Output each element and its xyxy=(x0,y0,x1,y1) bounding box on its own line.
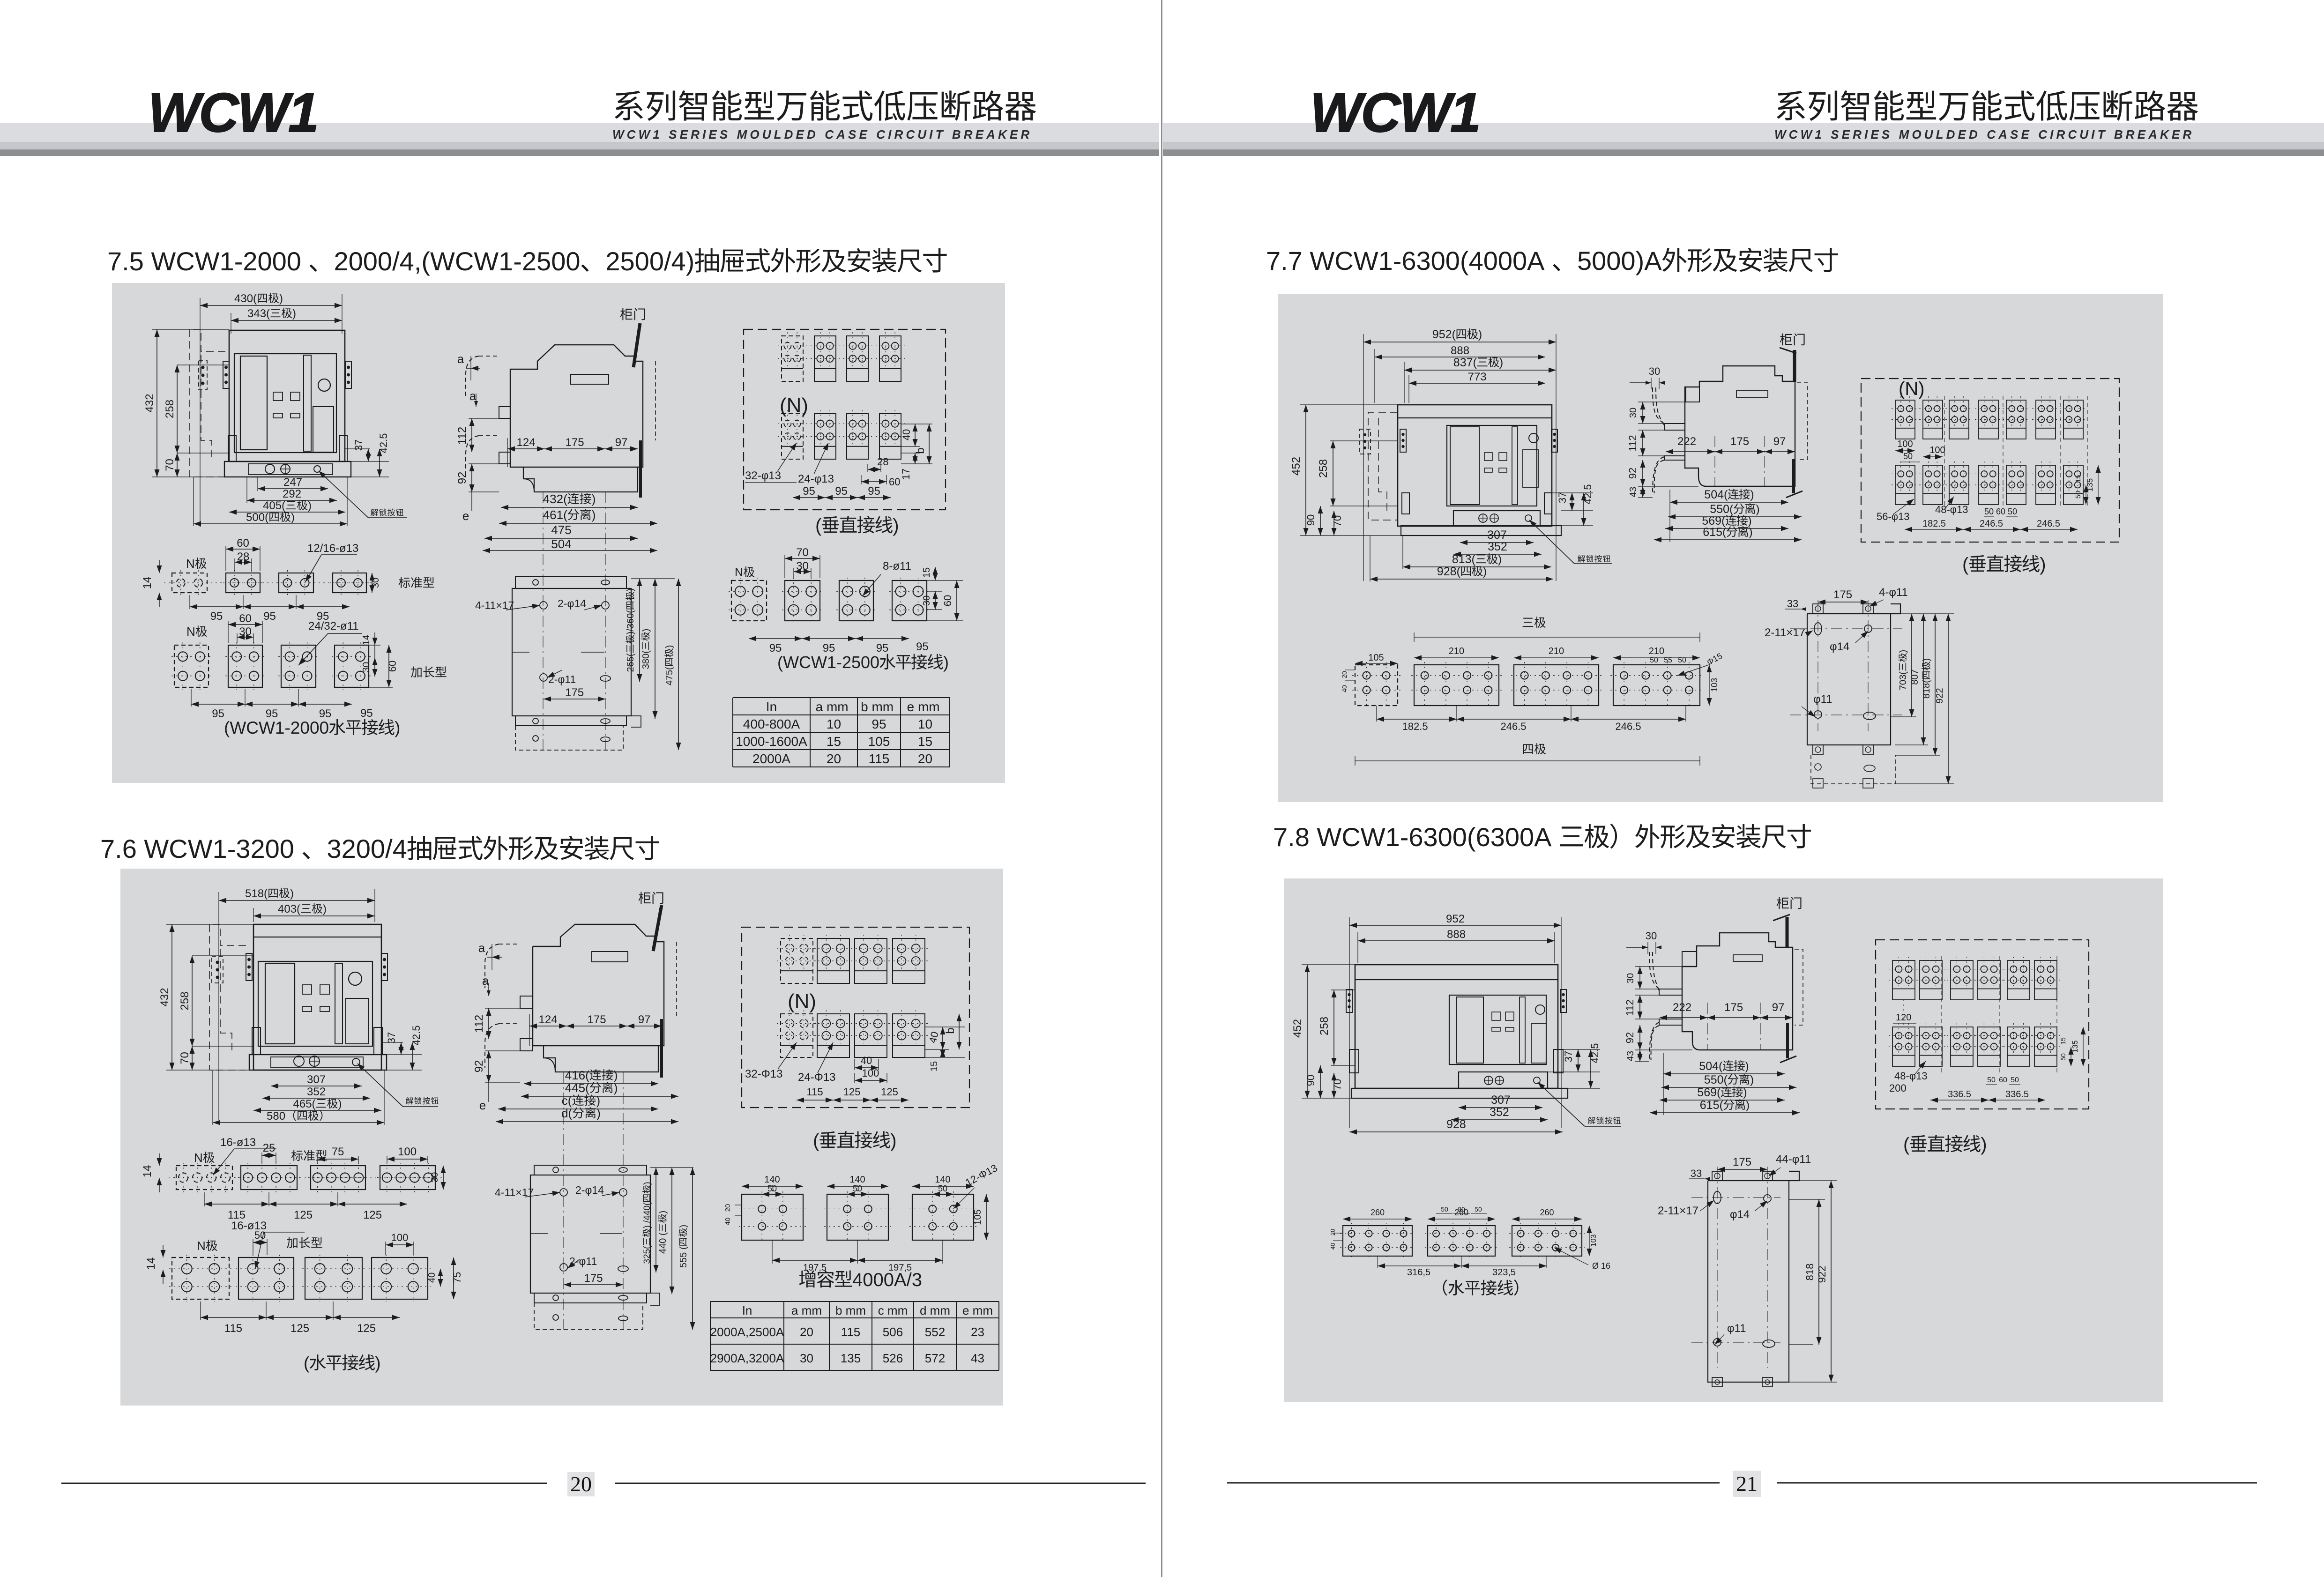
svg-text:): ) xyxy=(1745,1060,1749,1073)
svg-text:70: 70 xyxy=(179,1052,191,1064)
svg-text:30: 30 xyxy=(1649,365,1660,377)
svg-text:30: 30 xyxy=(1646,930,1657,942)
svg-text:): ) xyxy=(664,645,675,648)
svg-text:)/360(: )/360( xyxy=(626,610,636,635)
svg-text:(: ( xyxy=(304,1354,310,1373)
svg-text:33: 33 xyxy=(1787,598,1798,610)
svg-text:4000A/3: 4000A/3 xyxy=(852,1270,922,1290)
svg-text:): ) xyxy=(1478,328,1482,341)
svg-text:23: 23 xyxy=(971,1325,984,1339)
svg-text:92: 92 xyxy=(1627,468,1639,479)
svg-text:a: a xyxy=(457,352,464,366)
svg-text:14: 14 xyxy=(141,1165,154,1178)
svg-text:20: 20 xyxy=(570,1472,592,1496)
svg-text:90: 90 xyxy=(1305,1075,1317,1086)
svg-text:60: 60 xyxy=(942,595,953,606)
svg-text:WCW1: WCW1 xyxy=(148,82,318,144)
svg-text:60: 60 xyxy=(889,476,900,488)
svg-text:40: 40 xyxy=(1341,685,1348,692)
svg-text:2-φ14: 2-φ14 xyxy=(575,1184,604,1196)
svg-text:343(: 343( xyxy=(247,307,270,320)
svg-text:807: 807 xyxy=(1910,669,1920,684)
svg-text:(: ( xyxy=(813,1131,819,1151)
svg-text:92: 92 xyxy=(456,472,469,484)
svg-text:): ) xyxy=(290,887,294,900)
svg-text:95: 95 xyxy=(212,707,224,720)
svg-text:φ14: φ14 xyxy=(1730,1208,1750,1221)
svg-text:432(: 432( xyxy=(543,492,567,506)
svg-text:30: 30 xyxy=(361,662,372,672)
svg-text:105: 105 xyxy=(868,734,890,749)
svg-text:552: 552 xyxy=(925,1325,945,1339)
svg-text:φ11: φ11 xyxy=(1727,1322,1746,1335)
svg-text:928: 928 xyxy=(1446,1118,1466,1131)
svg-text:40: 40 xyxy=(427,1272,437,1283)
svg-text:50: 50 xyxy=(1903,452,1913,461)
svg-text:452: 452 xyxy=(1291,1019,1304,1038)
svg-text:30: 30 xyxy=(1628,408,1639,418)
svg-text:): ) xyxy=(641,629,651,632)
svg-text:403(: 403( xyxy=(278,903,300,915)
svg-text:): ) xyxy=(642,1182,652,1184)
svg-text:In: In xyxy=(766,699,777,714)
svg-text:(: ( xyxy=(1903,1134,1910,1155)
svg-text:105: 105 xyxy=(973,1209,983,1225)
svg-text:258: 258 xyxy=(1318,1017,1331,1035)
svg-text:): ) xyxy=(338,1098,342,1110)
svg-text:197,5: 197,5 xyxy=(803,1263,827,1273)
svg-text:): ) xyxy=(678,1225,689,1228)
svg-text:42.5: 42.5 xyxy=(1589,1043,1601,1064)
svg-text:952: 952 xyxy=(1446,913,1465,925)
svg-text:): ) xyxy=(1498,553,1502,566)
svg-text:112: 112 xyxy=(473,1015,485,1033)
svg-text:175: 175 xyxy=(565,686,584,699)
svg-text:φ14: φ14 xyxy=(1830,640,1849,653)
svg-text:a: a xyxy=(469,389,477,403)
svg-text:20: 20 xyxy=(918,751,932,766)
svg-text:5000)A: 5000)A xyxy=(1577,246,1662,275)
svg-text:400-800A: 400-800A xyxy=(743,717,800,731)
svg-text:): ) xyxy=(1743,1086,1747,1099)
svg-text:445(: 445( xyxy=(565,1081,589,1095)
svg-text:): ) xyxy=(614,1081,618,1095)
svg-text:475: 475 xyxy=(551,523,571,537)
svg-text:33: 33 xyxy=(1691,1168,1702,1179)
svg-text:50: 50 xyxy=(1984,507,1994,516)
svg-text:): ) xyxy=(1981,1134,1987,1155)
svg-text:210: 210 xyxy=(1449,646,1464,656)
svg-text:d mm: d mm xyxy=(920,1303,950,1317)
svg-text:φ11: φ11 xyxy=(1813,693,1832,706)
svg-text:N: N xyxy=(735,566,743,579)
svg-text:16-ø13: 16-ø13 xyxy=(220,1136,256,1149)
svg-text:135: 135 xyxy=(2071,1041,2079,1053)
svg-text:135: 135 xyxy=(841,1351,861,1365)
svg-text:818: 818 xyxy=(1804,1264,1816,1281)
svg-text:95: 95 xyxy=(263,610,276,623)
svg-text:526: 526 xyxy=(883,1351,903,1365)
svg-text:103: 103 xyxy=(1590,1235,1598,1247)
svg-text:506: 506 xyxy=(883,1325,903,1339)
svg-text:247: 247 xyxy=(283,476,302,489)
svg-text:c(: c( xyxy=(562,1093,572,1108)
svg-text:): ) xyxy=(596,1106,601,1120)
svg-text:210: 210 xyxy=(1649,646,1664,656)
svg-text:WCW1 SERIES MOULDED CASE CIRCU: WCW1 SERIES MOULDED CASE CIRCUIT BREAKER xyxy=(612,127,1032,141)
svg-text:703(: 703( xyxy=(1898,671,1908,690)
svg-text:352: 352 xyxy=(1490,1106,1509,1119)
svg-text:): ) xyxy=(890,1131,896,1151)
svg-text:e: e xyxy=(479,1098,486,1112)
svg-text:461(: 461( xyxy=(543,508,567,522)
svg-text:140: 140 xyxy=(849,1175,865,1185)
svg-text:20: 20 xyxy=(800,1325,813,1339)
svg-text:50: 50 xyxy=(767,1184,777,1193)
svg-text:50: 50 xyxy=(2011,1076,2019,1084)
svg-text:103: 103 xyxy=(1710,678,1719,692)
svg-text:70: 70 xyxy=(164,459,176,471)
svg-text:1000-1600A: 1000-1600A xyxy=(736,734,807,749)
svg-text:500(: 500( xyxy=(246,511,268,524)
svg-text:30: 30 xyxy=(239,625,252,638)
svg-text:258: 258 xyxy=(1317,459,1330,478)
svg-text:30: 30 xyxy=(371,578,381,588)
svg-text:175: 175 xyxy=(584,1272,603,1285)
svg-text:): ) xyxy=(1750,488,1754,501)
svg-text:24-Φ13: 24-Φ13 xyxy=(798,1071,836,1084)
svg-text:15: 15 xyxy=(2059,1037,2067,1045)
svg-text:20: 20 xyxy=(724,1204,732,1212)
svg-text:818(: 818( xyxy=(1922,680,1932,699)
svg-text:70: 70 xyxy=(796,546,809,559)
svg-text:182.5: 182.5 xyxy=(1402,721,1428,732)
svg-text:50: 50 xyxy=(853,1184,862,1193)
svg-text:40: 40 xyxy=(1329,1243,1336,1250)
svg-text:75: 75 xyxy=(451,1272,463,1283)
svg-text:100: 100 xyxy=(391,1232,409,1243)
svg-text:): ) xyxy=(375,1354,380,1373)
svg-text:28: 28 xyxy=(877,456,888,468)
svg-text:42.5: 42.5 xyxy=(378,433,389,454)
svg-text:50: 50 xyxy=(1678,656,1686,664)
svg-text:95: 95 xyxy=(916,640,929,653)
svg-text:246.5: 246.5 xyxy=(1980,519,2003,529)
svg-text:7.6 WCW1-3200: 7.6 WCW1-3200 xyxy=(100,834,294,863)
svg-text:115: 115 xyxy=(841,1325,860,1339)
svg-text:115: 115 xyxy=(224,1322,242,1335)
svg-text:124: 124 xyxy=(517,436,536,449)
svg-text:2500/4): 2500/4) xyxy=(605,246,694,276)
svg-text:95: 95 xyxy=(360,707,373,720)
svg-text:504(: 504( xyxy=(1704,488,1728,501)
svg-text:): ) xyxy=(592,492,596,506)
svg-text:3200/4: 3200/4 xyxy=(327,834,407,863)
svg-text:37: 37 xyxy=(353,439,365,451)
svg-text:): ) xyxy=(292,307,296,320)
svg-text:): ) xyxy=(1898,650,1908,653)
svg-text:28: 28 xyxy=(237,550,250,563)
svg-text:323,5: 323,5 xyxy=(1492,1267,1516,1278)
svg-text:452: 452 xyxy=(1290,457,1303,476)
svg-text:7.7 WCW1-6300(4000A: 7.7 WCW1-6300(4000A xyxy=(1266,246,1545,275)
svg-text:N: N xyxy=(186,625,195,639)
svg-text:258: 258 xyxy=(179,991,191,1010)
svg-text:30: 30 xyxy=(800,1351,813,1365)
svg-text:32-φ13: 32-φ13 xyxy=(745,469,781,482)
svg-text:43: 43 xyxy=(1628,487,1639,497)
svg-text:2-φ14: 2-φ14 xyxy=(558,597,586,610)
svg-text:928(: 928( xyxy=(1437,565,1461,578)
svg-text:175: 175 xyxy=(566,436,584,449)
svg-text:92: 92 xyxy=(473,1060,485,1073)
svg-text:432: 432 xyxy=(158,988,171,1006)
svg-text:N: N xyxy=(194,1151,203,1165)
svg-text:25: 25 xyxy=(263,1142,276,1154)
svg-text:30: 30 xyxy=(796,560,809,573)
svg-text:56-φ13: 56-φ13 xyxy=(1877,511,1910,522)
svg-text:97: 97 xyxy=(1772,1001,1785,1014)
svg-text:246.5: 246.5 xyxy=(1501,721,1527,732)
svg-text:95: 95 xyxy=(803,485,815,498)
svg-text:30: 30 xyxy=(430,1172,440,1183)
svg-text:50: 50 xyxy=(1441,1205,1448,1213)
svg-text:432: 432 xyxy=(143,394,156,412)
svg-text:2-11×17: 2-11×17 xyxy=(1658,1205,1698,1217)
svg-text:): ) xyxy=(658,1211,668,1214)
svg-text:20: 20 xyxy=(827,751,841,766)
svg-text:260: 260 xyxy=(1371,1208,1385,1217)
svg-text:): ) xyxy=(1483,565,1487,578)
svg-text:15: 15 xyxy=(922,567,932,578)
svg-text:90: 90 xyxy=(1305,514,1317,526)
svg-text:20: 20 xyxy=(1329,1229,1336,1235)
svg-text:10: 10 xyxy=(918,717,932,731)
svg-text:8-ø11: 8-ø11 xyxy=(883,560,911,573)
svg-text:125: 125 xyxy=(363,1209,382,1221)
svg-text:115: 115 xyxy=(807,1086,823,1098)
svg-text:125: 125 xyxy=(843,1086,861,1098)
svg-text:265(: 265( xyxy=(626,653,636,672)
svg-text:14: 14 xyxy=(145,1257,157,1270)
svg-text:92: 92 xyxy=(1624,1032,1636,1043)
svg-text:222: 222 xyxy=(1673,1001,1691,1014)
svg-text:30: 30 xyxy=(1625,973,1636,983)
svg-text:125: 125 xyxy=(357,1322,376,1335)
svg-text:): ) xyxy=(308,499,312,512)
svg-text:): ) xyxy=(596,1093,601,1108)
svg-text:20: 20 xyxy=(1341,671,1348,678)
svg-text:550(: 550( xyxy=(1704,1073,1728,1086)
svg-text:888: 888 xyxy=(1447,928,1466,941)
svg-text:292: 292 xyxy=(283,488,301,500)
svg-text:97: 97 xyxy=(638,1013,651,1026)
svg-text:416(: 416( xyxy=(565,1068,589,1082)
svg-text:4-11×17: 4-11×17 xyxy=(475,599,514,611)
svg-text:405(: 405( xyxy=(263,499,285,512)
svg-text:): ) xyxy=(614,1068,618,1082)
svg-text:70: 70 xyxy=(1332,515,1343,527)
svg-text:112: 112 xyxy=(456,427,469,445)
svg-text:24/32-ø11: 24/32-ø11 xyxy=(308,620,359,632)
svg-text:15: 15 xyxy=(827,734,841,749)
svg-text:97: 97 xyxy=(1773,435,1786,448)
svg-text:b mm: b mm xyxy=(861,699,894,714)
svg-text:352: 352 xyxy=(307,1086,326,1098)
svg-text:): ) xyxy=(1749,526,1752,539)
svg-text:2000A: 2000A xyxy=(752,751,790,766)
svg-text:): ) xyxy=(1750,1073,1754,1086)
svg-text:182.5: 182.5 xyxy=(1922,519,1946,529)
svg-text:7.8 WCW1-6300(6300A: 7.8 WCW1-6300(6300A xyxy=(1273,822,1552,852)
svg-text:): ) xyxy=(2040,554,2046,575)
svg-text:888: 888 xyxy=(1451,344,1469,357)
svg-text:(: ( xyxy=(815,515,822,536)
svg-text:2000/4,(WCW1-2500: 2000/4,(WCW1-2500 xyxy=(334,246,581,276)
svg-text:44-φ11: 44-φ11 xyxy=(1776,1153,1811,1166)
svg-text:95: 95 xyxy=(210,610,223,623)
svg-text:30: 30 xyxy=(922,595,932,606)
svg-text:4-11×17: 4-11×17 xyxy=(495,1186,534,1198)
svg-text:135: 135 xyxy=(2086,478,2094,491)
svg-text:475(: 475( xyxy=(664,667,675,685)
svg-text:55: 55 xyxy=(1664,656,1672,664)
svg-text:80: 80 xyxy=(1458,1205,1465,1213)
svg-text:42.5: 42.5 xyxy=(1582,484,1594,505)
svg-text:37: 37 xyxy=(386,1032,397,1043)
svg-text:580: 580 xyxy=(267,1110,285,1123)
svg-text:246.5: 246.5 xyxy=(2037,519,2060,529)
svg-text:4-φ11: 4-φ11 xyxy=(1879,586,1908,599)
svg-text:50: 50 xyxy=(254,1229,266,1241)
svg-text:813(: 813( xyxy=(1452,553,1476,566)
svg-text:48-φ13: 48-φ13 xyxy=(1894,1070,1928,1082)
svg-text:112: 112 xyxy=(1627,435,1639,451)
svg-text:14: 14 xyxy=(361,635,372,645)
svg-text:): ) xyxy=(893,515,899,536)
svg-text:): ) xyxy=(1756,503,1759,516)
svg-text:837(: 837( xyxy=(1453,356,1477,369)
svg-text:2900A,3200A: 2900A,3200A xyxy=(710,1351,784,1365)
svg-text:60: 60 xyxy=(387,661,398,672)
svg-text:336.5: 336.5 xyxy=(1948,1089,1971,1100)
svg-text:200: 200 xyxy=(1889,1082,1907,1094)
svg-text:922: 922 xyxy=(1816,1266,1828,1283)
svg-text:37: 37 xyxy=(1563,1051,1574,1062)
svg-text:d(: d( xyxy=(561,1106,572,1120)
svg-text:316,5: 316,5 xyxy=(1407,1267,1430,1278)
svg-text:(N): (N) xyxy=(780,394,808,417)
svg-text:): ) xyxy=(626,588,636,592)
svg-text:37: 37 xyxy=(1557,492,1568,503)
svg-text:14: 14 xyxy=(141,577,154,589)
svg-text:60: 60 xyxy=(237,537,249,550)
svg-text:95: 95 xyxy=(871,717,886,731)
svg-text:550(: 550( xyxy=(1710,503,1734,516)
svg-text:(N): (N) xyxy=(788,990,816,1013)
svg-text:175: 175 xyxy=(1724,1001,1743,1014)
svg-text:100: 100 xyxy=(1897,439,1913,449)
svg-text:175: 175 xyxy=(1733,1156,1751,1168)
svg-text:40: 40 xyxy=(901,429,912,440)
svg-text:125: 125 xyxy=(294,1209,313,1221)
svg-text:125: 125 xyxy=(881,1086,898,1098)
svg-text:N: N xyxy=(186,557,195,571)
svg-text:43: 43 xyxy=(1625,1051,1636,1061)
svg-text:504(: 504( xyxy=(1699,1060,1723,1073)
svg-text:(WCW1-2500: (WCW1-2500 xyxy=(777,653,879,672)
svg-text:50: 50 xyxy=(2059,1053,2067,1061)
svg-text:922: 922 xyxy=(1935,688,1945,703)
svg-text:60: 60 xyxy=(1999,1076,2007,1084)
svg-text:246.5: 246.5 xyxy=(1616,721,1641,732)
svg-text:21: 21 xyxy=(1736,1472,1758,1495)
svg-text:48-φ13: 48-φ13 xyxy=(1935,504,1968,515)
svg-text:60: 60 xyxy=(1996,507,2005,516)
svg-text:): ) xyxy=(291,511,295,524)
svg-text:): ) xyxy=(943,653,949,672)
svg-text:440 (: 440 ( xyxy=(658,1232,668,1254)
svg-text:b: b xyxy=(914,447,927,454)
svg-text:a: a xyxy=(478,941,485,955)
svg-text:b mm: b mm xyxy=(835,1303,866,1317)
svg-text:In: In xyxy=(742,1303,752,1317)
svg-text:50: 50 xyxy=(1987,1076,1996,1084)
svg-text:10: 10 xyxy=(827,717,841,731)
svg-text:): ) xyxy=(1499,356,1503,369)
svg-text:222: 222 xyxy=(1677,435,1696,448)
svg-text:336.5: 336.5 xyxy=(2005,1089,2029,1100)
svg-text:60: 60 xyxy=(239,612,252,625)
svg-text:175: 175 xyxy=(1730,435,1749,448)
svg-text:307: 307 xyxy=(1491,1093,1511,1107)
svg-text:97: 97 xyxy=(615,436,628,449)
svg-text:572: 572 xyxy=(925,1351,945,1365)
svg-text:e mm: e mm xyxy=(962,1303,993,1317)
svg-text:7.5 WCW1-2000: 7.5 WCW1-2000 xyxy=(107,246,301,276)
svg-text:): ) xyxy=(395,718,400,737)
svg-text:125: 125 xyxy=(290,1322,309,1335)
svg-text:32-Φ13: 32-Φ13 xyxy=(745,1068,783,1080)
svg-text:17: 17 xyxy=(900,469,912,480)
svg-text:2-φ11: 2-φ11 xyxy=(569,1255,597,1267)
svg-text:Ø 16: Ø 16 xyxy=(1592,1261,1610,1271)
svg-text:) /440(: ) /440( xyxy=(642,1202,652,1228)
svg-text:N: N xyxy=(197,1239,206,1253)
svg-text:124: 124 xyxy=(539,1013,558,1026)
svg-text:100: 100 xyxy=(1929,445,1945,455)
svg-text:): ) xyxy=(1922,658,1932,662)
svg-text:40: 40 xyxy=(724,1218,732,1226)
svg-text:50: 50 xyxy=(1650,656,1658,664)
svg-text:105: 105 xyxy=(1368,653,1384,663)
svg-text:e: e xyxy=(462,509,469,523)
svg-text:352: 352 xyxy=(1488,540,1507,553)
svg-text:42.5: 42.5 xyxy=(410,1026,422,1046)
svg-text:b: b xyxy=(944,1027,957,1034)
svg-text:258: 258 xyxy=(164,400,176,418)
svg-text:(WCW1-2000: (WCW1-2000 xyxy=(224,718,329,737)
svg-text:773: 773 xyxy=(1468,371,1487,383)
svg-text:2-φ11: 2-φ11 xyxy=(548,673,576,685)
svg-text:70: 70 xyxy=(1332,1079,1343,1090)
svg-text:100: 100 xyxy=(862,1067,879,1079)
svg-text:115: 115 xyxy=(869,751,890,766)
svg-text:140: 140 xyxy=(764,1175,780,1185)
svg-text:952(: 952( xyxy=(1432,328,1456,341)
svg-text:12/16-ø13: 12/16-ø13 xyxy=(307,542,358,555)
svg-text:): ) xyxy=(592,508,596,522)
